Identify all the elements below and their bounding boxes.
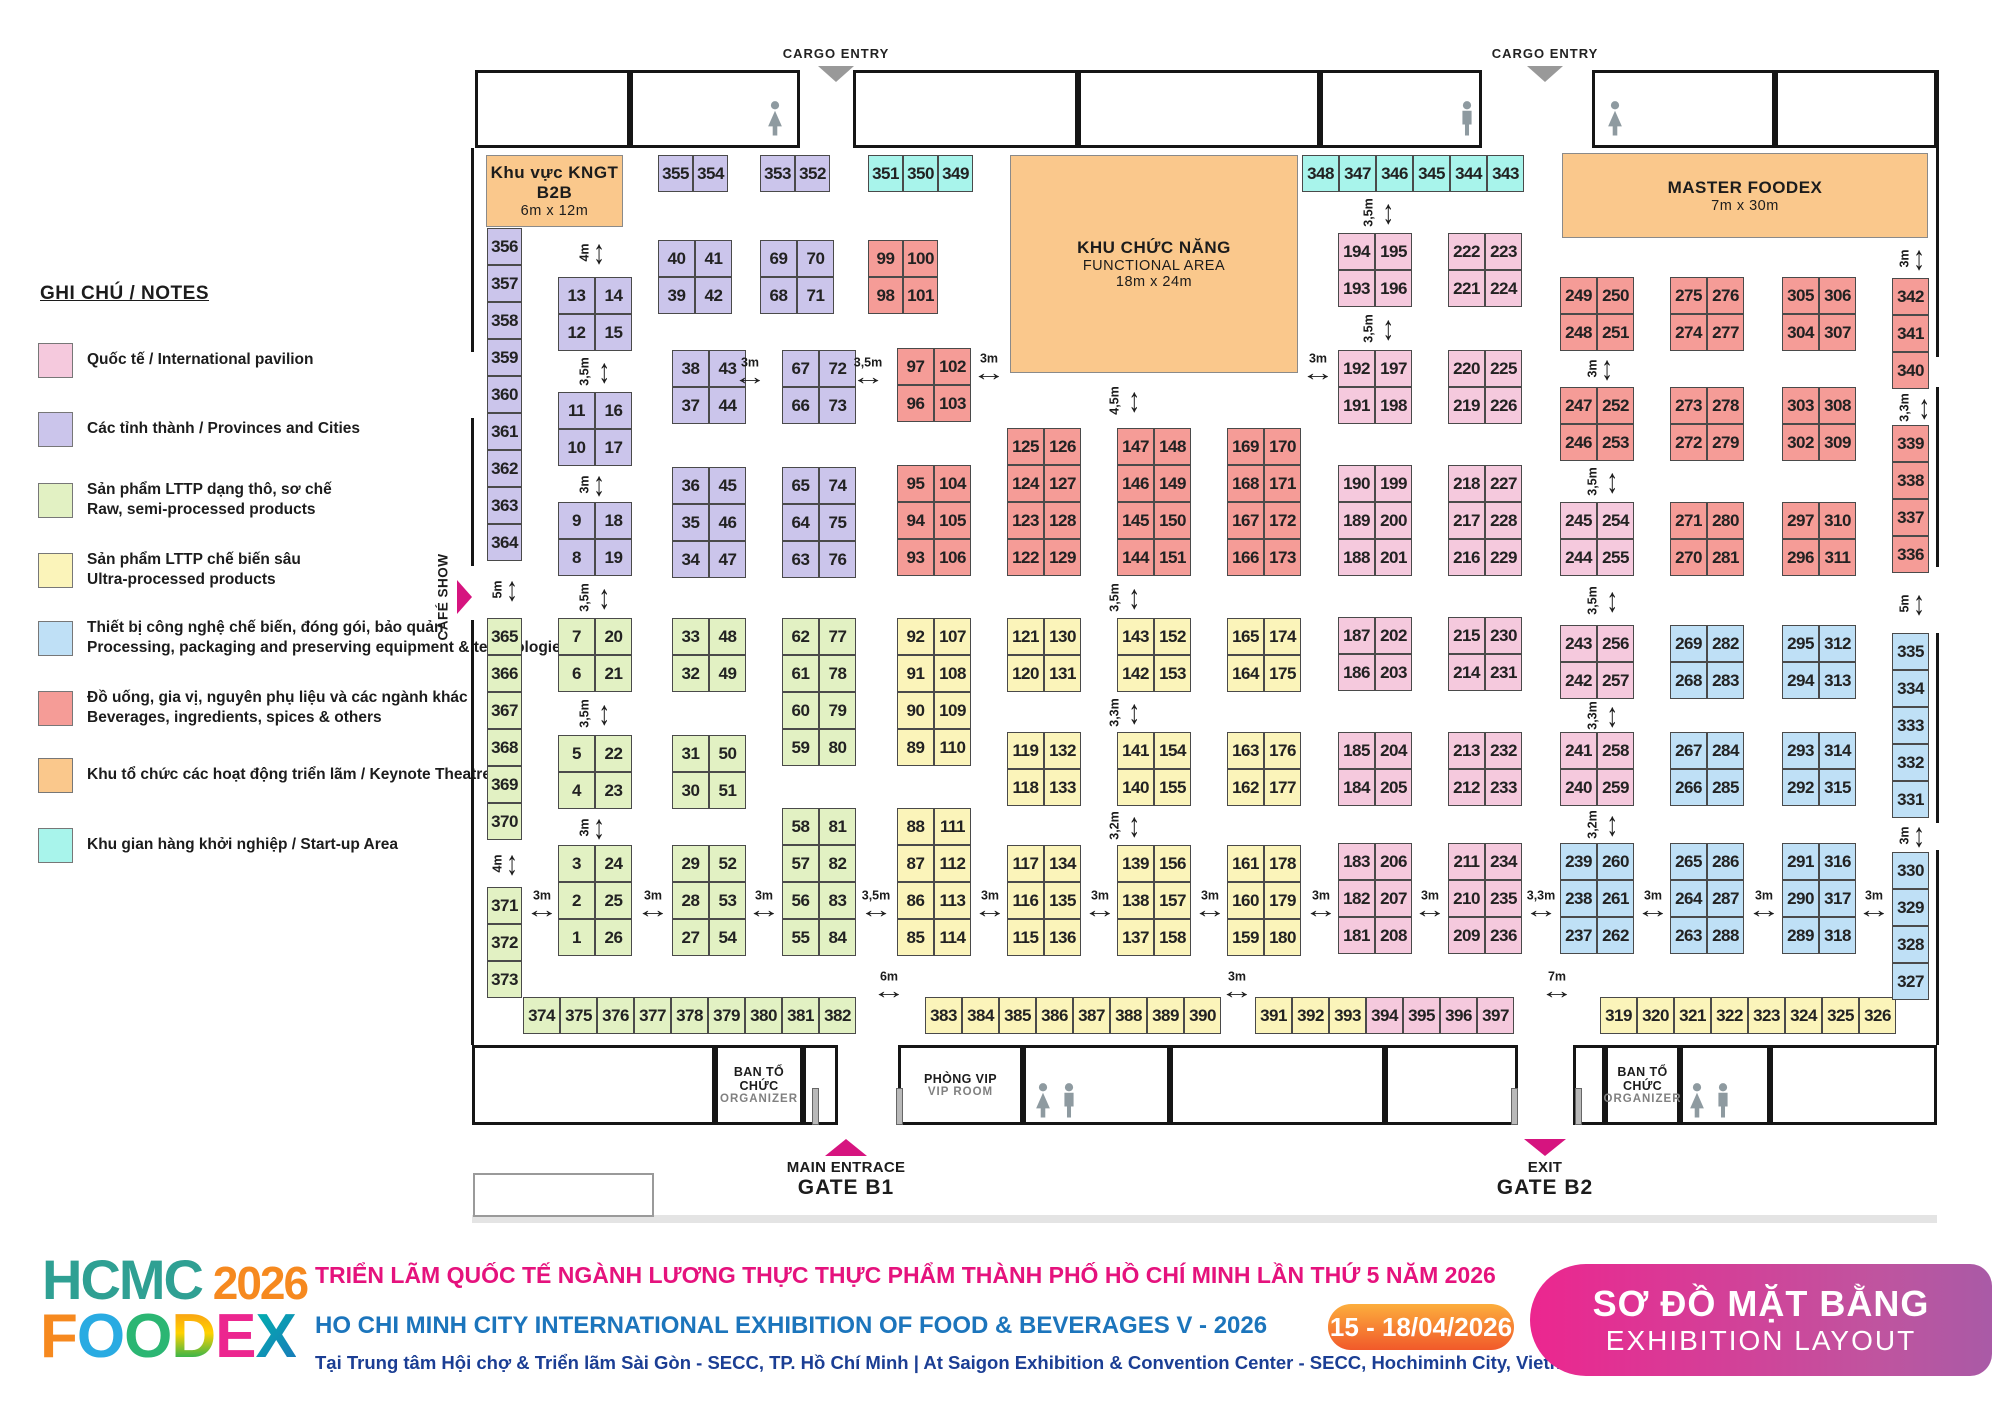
booth-13: 13: [558, 277, 595, 314]
booth-102: 102: [934, 348, 971, 385]
booth-58: 58: [782, 808, 819, 845]
booth-block: 371372373: [487, 887, 522, 998]
booth-355: 355: [658, 155, 693, 192]
booth-block: 69706871: [760, 240, 834, 314]
booth-258: 258: [1597, 732, 1634, 769]
dimension-vertical: 3,5m↕: [1578, 589, 1618, 612]
booth-392: 392: [1292, 997, 1329, 1034]
dimension-horizontal: 3m↔: [1307, 352, 1330, 385]
booth-113: 113: [934, 882, 971, 919]
booth-213: 213: [1448, 732, 1485, 769]
booth-block: 211234210235209236: [1448, 843, 1522, 954]
area-khu-ch-c-n-ng: KHU CHỨC NĂNGFUNCTIONAL AREA18m x 24m: [1010, 155, 1298, 373]
booth-330: 330: [1892, 852, 1929, 889]
booth-81: 81: [819, 808, 856, 845]
booth-338: 338: [1892, 462, 1929, 499]
booth-257: 257: [1597, 662, 1634, 699]
booth-68: 68: [760, 277, 797, 314]
legend-item-provinces: Các tỉnh thành / Provinces and Cities: [38, 412, 360, 447]
room-label-vn: BAN TỔ CHỨC: [718, 1065, 800, 1093]
booth-381: 381: [782, 997, 819, 1034]
wall-segment: [1936, 387, 1939, 567]
booth-206: 206: [1375, 843, 1412, 880]
booth-186: 186: [1338, 654, 1375, 691]
booth-63: 63: [782, 541, 819, 578]
area-label: 7m x 30m: [1711, 198, 1779, 214]
booth-135: 135: [1044, 882, 1081, 919]
legend-item-label: Khu tổ chức các hoạt động triển lãm / Ke…: [87, 765, 491, 785]
booth-block: 215230214231: [1448, 617, 1522, 691]
booth-100: 100: [903, 240, 938, 277]
booth-20: 20: [595, 618, 632, 655]
room-organizer: BAN TỔ CHỨCORGANIZER: [715, 1045, 803, 1125]
booth-block: 92107911089010989110: [897, 618, 971, 766]
booth-192: 192: [1338, 350, 1375, 387]
booth-121: 121: [1007, 618, 1044, 655]
booth-366: 366: [487, 655, 522, 692]
booth-190: 190: [1338, 465, 1375, 502]
wall-segment: [471, 418, 474, 566]
booth-340: 340: [1892, 352, 1929, 389]
booth-9: 9: [558, 502, 595, 539]
booth-387: 387: [1073, 997, 1110, 1034]
area-master-foodex: MASTER FOODEX7m x 30m: [1562, 153, 1928, 238]
booth-326: 326: [1859, 997, 1896, 1034]
booth-11: 11: [558, 392, 595, 429]
booth-123: 123: [1007, 502, 1044, 539]
booth-253: 253: [1597, 424, 1634, 461]
booth-block: 291316290317289318: [1782, 843, 1856, 954]
dimension-vertical: 3m↕: [1895, 824, 1925, 847]
booth-279: 279: [1707, 424, 1744, 461]
booth-311: 311: [1819, 539, 1856, 576]
booth-365: 365: [487, 618, 522, 655]
hall-room: [803, 1045, 838, 1125]
booth-159: 159: [1227, 919, 1264, 956]
booth-block: 364535463447: [672, 467, 746, 578]
booth-179: 179: [1264, 882, 1301, 919]
booth-223: 223: [1485, 233, 1522, 270]
booth-7: 7: [558, 618, 595, 655]
booth-344: 344: [1450, 155, 1487, 192]
booth-249: 249: [1560, 277, 1597, 314]
booth-142: 142: [1117, 655, 1154, 692]
booth-120: 120: [1007, 655, 1044, 692]
booth-227: 227: [1485, 465, 1522, 502]
booth-389: 389: [1147, 997, 1184, 1034]
booth-3: 3: [558, 845, 595, 882]
booth-block: 121130120131: [1007, 618, 1081, 692]
booth-61: 61: [782, 655, 819, 692]
booth-242: 242: [1560, 662, 1597, 699]
booth-163: 163: [1227, 732, 1264, 769]
booth-148: 148: [1154, 428, 1191, 465]
booth-64: 64: [782, 504, 819, 541]
booth-157: 157: [1154, 882, 1191, 919]
dimension-vertical: 3,3m↕: [1890, 396, 1930, 419]
booth-38: 38: [672, 350, 709, 387]
booth-397: 397: [1477, 997, 1514, 1034]
booth-block: 243256242257: [1560, 625, 1634, 699]
booth-block: 295312294313: [1782, 625, 1856, 699]
booth-111: 111: [934, 808, 971, 845]
booth-216: 216: [1448, 539, 1485, 576]
dimension-vertical: 4,5m↕: [1100, 389, 1140, 412]
booth-256: 256: [1597, 625, 1634, 662]
booth-56: 56: [782, 882, 819, 919]
booth-block: 319320321322323324325326: [1600, 997, 1896, 1034]
booth-97: 97: [897, 348, 934, 385]
logo-hcmc: HCMC 2026: [42, 1252, 307, 1308]
booth-335: 335: [1892, 633, 1929, 670]
dimension-vertical: 3,3m↕: [1100, 701, 1140, 724]
booth-2: 2: [558, 882, 595, 919]
door-bar: [1511, 1088, 1518, 1125]
hall-room: [1770, 1045, 1937, 1125]
booth-block: 9910098101: [868, 240, 938, 314]
booth-334: 334: [1892, 670, 1929, 707]
legend-item-beverages: Đồ uống, gia vị, nguyên phụ liệu và các …: [38, 688, 468, 728]
booth-177: 177: [1264, 769, 1301, 806]
booth-158: 158: [1154, 919, 1191, 956]
booth-84: 84: [819, 919, 856, 956]
booth-block: 265286264287263288: [1670, 843, 1744, 954]
room-vip-room: PHÒNG VIPVIP ROOM: [898, 1045, 1023, 1125]
booth-98: 98: [868, 277, 903, 314]
booth-349: 349: [938, 155, 973, 192]
area-label: 18m x 24m: [1116, 274, 1192, 290]
booth-95: 95: [897, 465, 934, 502]
booth-88: 88: [897, 808, 934, 845]
booth-45: 45: [709, 467, 746, 504]
booth-160: 160: [1227, 882, 1264, 919]
booth-block: 241258240259: [1560, 732, 1634, 806]
dimension-vertical: 3,5m↕: [570, 360, 610, 383]
dimension-horizontal: 3m↔: [978, 352, 1001, 385]
booth-80: 80: [819, 729, 856, 766]
booth-210: 210: [1448, 880, 1485, 917]
booth-383: 383: [925, 997, 962, 1034]
dimension-vertical: 3,2m↕: [1100, 814, 1140, 837]
area-label: FUNCTIONAL AREA: [1083, 258, 1225, 274]
booth-260: 260: [1597, 843, 1634, 880]
booth-324: 324: [1785, 997, 1822, 1034]
booth-287: 287: [1707, 880, 1744, 917]
legend-swatch-beverages: [38, 691, 73, 726]
booth-block: 522423: [558, 735, 632, 809]
booth-230: 230: [1485, 617, 1522, 654]
booth-51: 51: [709, 772, 746, 809]
hall-room: [1078, 70, 1320, 148]
booth-337: 337: [1892, 499, 1929, 536]
booth-233: 233: [1485, 769, 1522, 806]
booth-82: 82: [819, 845, 856, 882]
booth-303: 303: [1782, 387, 1819, 424]
booth-156: 156: [1154, 845, 1191, 882]
booth-block: 169170168171167172166173: [1227, 428, 1301, 576]
booth-40: 40: [658, 240, 695, 277]
booth-262: 262: [1597, 917, 1634, 954]
booth-block: 269282268283: [1670, 625, 1744, 699]
booth-167: 167: [1227, 502, 1264, 539]
dimension-horizontal: 3m↔: [979, 889, 1002, 922]
booth-155: 155: [1154, 769, 1191, 806]
booth-62: 62: [782, 618, 819, 655]
dimension-horizontal: 3m↔: [531, 889, 554, 922]
booth-396: 396: [1440, 997, 1477, 1034]
booth-266: 266: [1670, 769, 1707, 806]
booth-37: 37: [672, 387, 709, 424]
booth-31: 31: [672, 735, 709, 772]
legend-item-label: Sản phẩm LTTP chế biến sâuUltra-processe…: [87, 550, 301, 590]
booth-246: 246: [1560, 424, 1597, 461]
booth-252: 252: [1597, 387, 1634, 424]
booth-18: 18: [595, 502, 632, 539]
booth-115: 115: [1007, 919, 1044, 956]
booth-73: 73: [819, 387, 856, 424]
booth-22: 22: [595, 735, 632, 772]
booth-278: 278: [1707, 387, 1744, 424]
booth-285: 285: [1707, 769, 1744, 806]
booth-273: 273: [1670, 387, 1707, 424]
booth-149: 149: [1154, 465, 1191, 502]
legend-swatch-raw: [38, 483, 73, 518]
booth-229: 229: [1485, 539, 1522, 576]
booth-178: 178: [1264, 845, 1301, 882]
booth-block: 365366367368369370: [487, 618, 522, 840]
booth-21: 21: [595, 655, 632, 692]
door-bar: [812, 1088, 819, 1125]
booth-block: 657464756376: [782, 467, 856, 578]
booth-89: 89: [897, 729, 934, 766]
booth-176: 176: [1264, 732, 1301, 769]
booth-248: 248: [1560, 314, 1597, 351]
booth-block: 275276274277: [1670, 277, 1744, 351]
booth-6: 6: [558, 655, 595, 692]
booth-198: 198: [1375, 387, 1412, 424]
booth-59: 59: [782, 729, 819, 766]
dimension-vertical: 3,5m↕: [1354, 317, 1394, 340]
legend-title: GHI CHÚ / NOTES: [40, 283, 209, 305]
booth-350: 350: [903, 155, 938, 192]
restroom-woman-icon: [764, 100, 786, 143]
booth-259: 259: [1597, 769, 1634, 806]
booth-378: 378: [671, 997, 708, 1034]
booth-block: 271280270281: [1670, 502, 1744, 576]
booth-33: 33: [672, 618, 709, 655]
booth-201: 201: [1375, 539, 1412, 576]
booth-106: 106: [934, 539, 971, 576]
booth-261: 261: [1597, 880, 1634, 917]
legend-swatch-provinces: [38, 412, 73, 447]
booth-block: 295228532754: [672, 845, 746, 956]
booth-277: 277: [1707, 314, 1744, 351]
booth-274: 274: [1670, 314, 1707, 351]
booth-351: 351: [868, 155, 903, 192]
layout-title-vn: SƠ ĐỒ MẶT BẰNG: [1593, 1283, 1930, 1325]
cargo-entry-label: CARGO ENTRY: [783, 46, 890, 61]
venue-line: Tại Trung tâm Hội chợ & Triển lãm Sài Gò…: [315, 1352, 1588, 1374]
booth-27: 27: [672, 919, 709, 956]
legend-item-label: Quốc tế / International pavilion: [87, 350, 314, 370]
booth-block: 183206182207181208: [1338, 843, 1412, 954]
legend-item-label: Khu gian hàng khởi nghiệp / Start-up Are…: [87, 835, 398, 855]
wall-segment: [471, 620, 474, 1045]
dimension-horizontal: 3m↔: [1642, 889, 1665, 922]
booth-342: 342: [1892, 278, 1929, 315]
booth-371: 371: [487, 887, 522, 924]
booth-328: 328: [1892, 926, 1929, 963]
booth-15: 15: [595, 314, 632, 351]
booth-144: 144: [1117, 539, 1154, 576]
booth-105: 105: [934, 502, 971, 539]
wall-segment: [471, 148, 474, 352]
booth-122: 122: [1007, 539, 1044, 576]
dimension-horizontal: 6m↔: [878, 970, 901, 1003]
dimension-vertical: 3m↕: [575, 816, 605, 839]
booth-376: 376: [597, 997, 634, 1034]
booth-block: 351350349: [868, 155, 973, 192]
booth-219: 219: [1448, 387, 1485, 424]
booth-391: 391: [1255, 997, 1292, 1034]
booth-114: 114: [934, 919, 971, 956]
cargo-entry-arrow-icon: [1527, 66, 1563, 82]
area-label: 6m x 12m: [521, 203, 589, 219]
booth-302: 302: [1782, 424, 1819, 461]
booth-block: 190199189200188201: [1338, 465, 1412, 576]
empty-room-outline: [473, 1173, 654, 1217]
booth-188: 188: [1338, 539, 1375, 576]
booth-block: 218227217228216229: [1448, 465, 1522, 576]
booth-41: 41: [695, 240, 732, 277]
booth-169: 169: [1227, 428, 1264, 465]
booth-237: 237: [1560, 917, 1597, 954]
booth-block: 9710296103: [897, 348, 971, 422]
booth-308: 308: [1819, 387, 1856, 424]
booth-154: 154: [1154, 732, 1191, 769]
booth-394: 394: [1366, 997, 1403, 1034]
booth-block: 40413942: [658, 240, 732, 314]
booth-294: 294: [1782, 662, 1819, 699]
booth-245: 245: [1560, 502, 1597, 539]
booth-12: 12: [558, 314, 595, 351]
dimension-vertical: 3,5m↕: [570, 586, 610, 609]
booth-226: 226: [1485, 387, 1522, 424]
legend-item-ultra: Sản phẩm LTTP chế biến sâuUltra-processe…: [38, 550, 301, 590]
dimension-vertical: 3,5m↕: [570, 702, 610, 725]
booth-368: 368: [487, 729, 522, 766]
booth-block: 6277617860795980: [782, 618, 856, 766]
area-label: Khu vực KNGT B2B: [487, 163, 622, 203]
booth-136: 136: [1044, 919, 1081, 956]
booth-194: 194: [1338, 233, 1375, 270]
booth-375: 375: [560, 997, 597, 1034]
booth-161: 161: [1227, 845, 1264, 882]
dimension-vertical: 3m↕: [1895, 247, 1925, 270]
booth-304: 304: [1782, 314, 1819, 351]
booth-29: 29: [672, 845, 709, 882]
booth-345: 345: [1413, 155, 1450, 192]
booth-358: 358: [487, 302, 522, 339]
booth-119: 119: [1007, 732, 1044, 769]
booth-93: 93: [897, 539, 934, 576]
legend-swatch-startup: [38, 828, 73, 863]
booth-202: 202: [1375, 617, 1412, 654]
booth-block: 249250248251: [1560, 277, 1634, 351]
booth-357: 357: [487, 265, 522, 302]
booth-222: 222: [1448, 233, 1485, 270]
booth-134: 134: [1044, 845, 1081, 882]
hall-room: [1385, 1045, 1518, 1125]
booth-232: 232: [1485, 732, 1522, 769]
booth-164: 164: [1227, 655, 1264, 692]
booth-90: 90: [897, 692, 934, 729]
booth-block: 267284266285: [1670, 732, 1744, 806]
booth-145: 145: [1117, 502, 1154, 539]
booth-384: 384: [962, 997, 999, 1034]
booth-235: 235: [1485, 880, 1522, 917]
booth-130: 130: [1044, 618, 1081, 655]
exhibition-layout-poster: GHI CHÚ / NOTES Quốc tế / International …: [0, 0, 2000, 1410]
booth-309: 309: [1819, 424, 1856, 461]
booth-46: 46: [709, 504, 746, 541]
booth-107: 107: [934, 618, 971, 655]
restroom-man-icon: [1456, 100, 1478, 143]
booth-block: 273278272279: [1670, 387, 1744, 461]
booth-269: 269: [1670, 625, 1707, 662]
wall-segment: [1936, 633, 1939, 823]
booth-356: 356: [487, 228, 522, 265]
booth-4: 4: [558, 772, 595, 809]
booth-220: 220: [1448, 350, 1485, 387]
booth-313: 313: [1819, 662, 1856, 699]
booth-373: 373: [487, 961, 522, 998]
booth-147: 147: [1117, 428, 1154, 465]
booth-228: 228: [1485, 502, 1522, 539]
booth-block: 353352: [760, 155, 830, 192]
booth-94: 94: [897, 502, 934, 539]
booth-block: 220225219226: [1448, 350, 1522, 424]
booth-181: 181: [1338, 917, 1375, 954]
booth-236: 236: [1485, 917, 1522, 954]
area-label: MASTER FOODEX: [1668, 178, 1823, 198]
legend-swatch-organizer: [38, 758, 73, 793]
dimension-horizontal: 3m↔: [1419, 889, 1442, 922]
booth-212: 212: [1448, 769, 1485, 806]
booth-374: 374: [523, 997, 560, 1034]
dimension-vertical: 3,2m↕: [1578, 813, 1618, 836]
cargo-entry-label: CARGO ENTRY: [1492, 46, 1599, 61]
booth-block: 720621: [558, 618, 632, 692]
booth-96: 96: [897, 385, 934, 422]
dimension-horizontal: 3,5m↔: [854, 356, 883, 389]
booth-306: 306: [1819, 277, 1856, 314]
booth-129: 129: [1044, 539, 1081, 576]
booth-47: 47: [709, 541, 746, 578]
booth-block: 383384385386387388389390: [925, 997, 1221, 1034]
booth-214: 214: [1448, 654, 1485, 691]
booth-86: 86: [897, 882, 934, 919]
booth-block: 33483249: [672, 618, 746, 692]
booth-369: 369: [487, 766, 522, 803]
booth-282: 282: [1707, 625, 1744, 662]
booth-92: 92: [897, 618, 934, 655]
restroom-man-icon: [1712, 1082, 1734, 1125]
booth-187: 187: [1338, 617, 1375, 654]
booth-block: 185204184205: [1338, 732, 1412, 806]
legend-item-organizer: Khu tổ chức các hoạt động triển lãm / Ke…: [38, 758, 491, 793]
booth-26: 26: [595, 919, 632, 956]
